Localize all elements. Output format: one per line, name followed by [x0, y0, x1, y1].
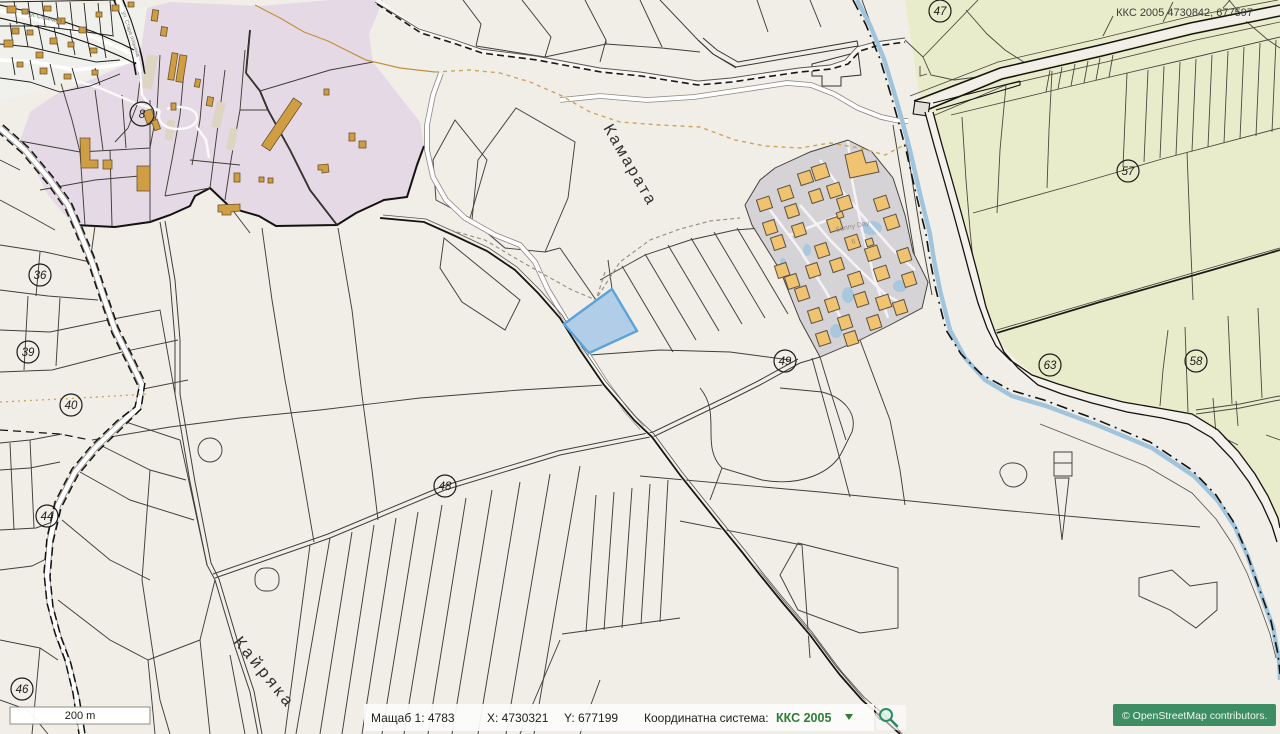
svg-text:39: 39: [22, 347, 35, 359]
svg-text:46: 46: [16, 684, 29, 696]
svg-text:X: 4730321: X: 4730321: [487, 711, 549, 725]
svg-text:58: 58: [1190, 356, 1203, 368]
svg-text:Y: 677199: Y: 677199: [564, 711, 618, 725]
svg-text:47: 47: [934, 6, 947, 18]
svg-text:© OpenStreetMap contributors: © OpenStreetMap contributors.: [1122, 710, 1267, 722]
svg-text:36: 36: [34, 270, 47, 282]
svg-text:8: 8: [139, 109, 146, 121]
svg-text:ККС 2005: ККС 2005: [776, 711, 831, 725]
svg-text:200 m: 200 m: [65, 710, 96, 722]
svg-text:48: 48: [439, 481, 452, 493]
svg-text:Мащаб 1: 4783: Мащаб 1: 4783: [371, 711, 455, 725]
svg-text:40: 40: [65, 400, 78, 412]
svg-text:ККС 2005 4730842, 677597: ККС 2005 4730842, 677597: [1116, 7, 1253, 19]
svg-text:44: 44: [41, 511, 54, 523]
svg-text:63: 63: [1044, 360, 1057, 372]
svg-text:57: 57: [1122, 166, 1135, 178]
svg-text:49: 49: [779, 356, 792, 368]
svg-text:Координатна система:: Координатна система:: [644, 711, 769, 725]
